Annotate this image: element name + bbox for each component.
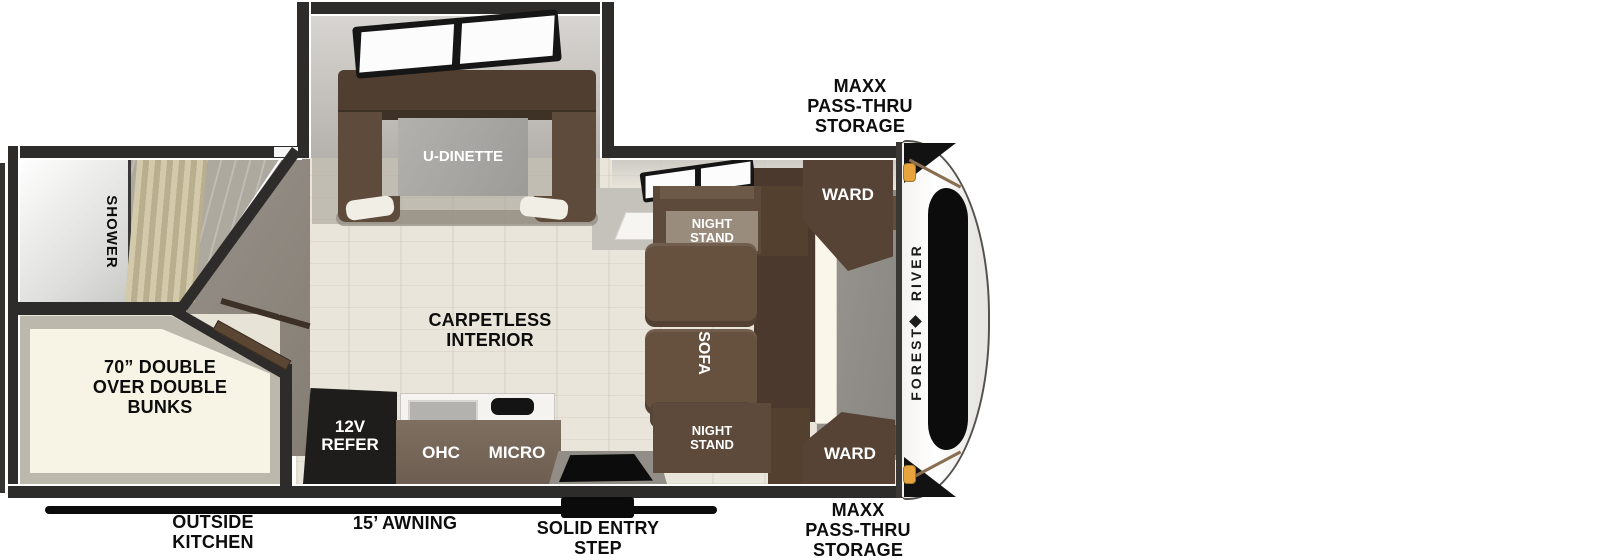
wall-bunk-right bbox=[280, 364, 292, 490]
nightstand-top-label: NIGHT STAND bbox=[690, 217, 734, 244]
marker-light-top bbox=[903, 163, 916, 182]
kitchen-sink bbox=[491, 398, 534, 415]
sofa-label: SOFA bbox=[689, 305, 717, 401]
dinette-table: U-DINETTE bbox=[398, 118, 528, 196]
cabinet-connector-top bbox=[758, 186, 808, 256]
nightstand-bottom: NIGHT STAND bbox=[653, 403, 771, 473]
carpetless-label: CARPETLESS INTERIOR bbox=[400, 310, 580, 350]
wall-top-rear bbox=[8, 146, 302, 160]
awning-label: 15’ AWNING bbox=[330, 513, 480, 533]
wall-top-front bbox=[610, 146, 906, 160]
micro-label: MICRO bbox=[478, 444, 556, 462]
storage-bottom-label: MAXX PASS-THRU STORAGE bbox=[778, 500, 938, 560]
floorplan-canvas: SHOWER 70” DOUBLE OVER DOUBLE BUNKS 12V … bbox=[0, 0, 1600, 560]
windshield-decal bbox=[928, 188, 968, 450]
slide-wall-right bbox=[600, 2, 614, 158]
marker-light-bottom bbox=[903, 465, 916, 484]
slide-wall-top bbox=[297, 2, 612, 16]
rear-bumper bbox=[0, 163, 5, 493]
wall-rear bbox=[8, 146, 20, 496]
refrigerator: 12V REFER bbox=[303, 388, 397, 484]
entry-step-bar bbox=[561, 497, 634, 518]
slide-wall-left bbox=[297, 2, 311, 158]
refrigerator-label: 12V REFER bbox=[321, 418, 379, 454]
nightstand-bottom-label: NIGHT STAND bbox=[690, 424, 734, 451]
window-pane bbox=[460, 15, 555, 63]
entry-step-label: SOLID ENTRY STEP bbox=[523, 518, 673, 558]
dinette-label: U-DINETTE bbox=[423, 149, 503, 165]
shower-label: SHOWER bbox=[91, 177, 119, 287]
storage-top-label: MAXX PASS-THRU STORAGE bbox=[780, 76, 940, 136]
nightstand-top-face bbox=[660, 186, 754, 199]
bunks-label: 70” DOUBLE OVER DOUBLE BUNKS bbox=[55, 357, 265, 417]
ohc-label: OHC bbox=[410, 444, 472, 462]
ward-bottom-label: WARD bbox=[805, 445, 895, 463]
window-pane bbox=[359, 24, 454, 72]
wall-bottom bbox=[8, 484, 906, 498]
ward-top-label: WARD bbox=[803, 186, 893, 204]
bed-platform-strip bbox=[815, 226, 837, 424]
outside-kitchen-label: OUTSIDE KITCHEN bbox=[143, 512, 283, 552]
wall-bath-mid bbox=[8, 302, 186, 315]
